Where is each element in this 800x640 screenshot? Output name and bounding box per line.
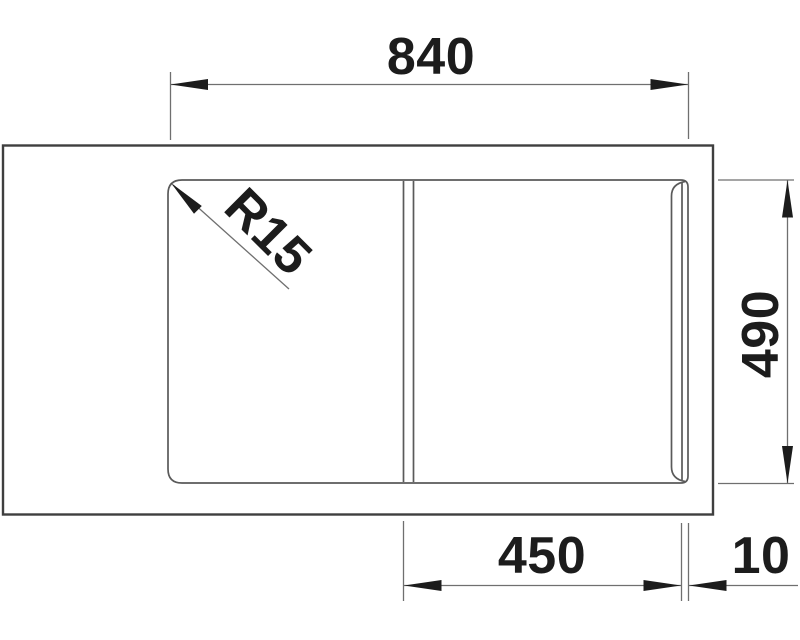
dimension-overall-width: 840 [171, 28, 689, 140]
arrow-right-icon [651, 79, 689, 90]
sink-drawing-svg: 840 490 450 10 [0, 0, 800, 640]
dimension-label-overall-width: 840 [387, 28, 475, 86]
arrow-left-icon [171, 79, 209, 90]
arrow-right-icon [644, 580, 682, 591]
dimension-label-bowl-width: 450 [498, 527, 586, 585]
arrow-diagonal-icon [171, 183, 202, 214]
arrow-up-icon [782, 180, 793, 218]
dimension-label-corner-radius: R15 [213, 177, 323, 287]
technical-drawing-canvas: 840 490 450 10 [0, 0, 800, 640]
dimension-bowl-width: 450 [404, 521, 682, 601]
bowl-inner-wall-line [672, 182, 686, 482]
dimension-label-edge-gap: 10 [732, 527, 791, 585]
arrow-left-icon [689, 580, 727, 591]
sink-outer-edge [3, 146, 713, 515]
dimension-edge-gap: 10 [689, 523, 799, 601]
sink-outline-group [3, 146, 713, 515]
dimension-label-overall-depth: 490 [732, 290, 790, 378]
arrow-down-icon [782, 446, 793, 484]
arrow-left-icon [404, 580, 442, 591]
dimension-overall-depth: 490 [718, 180, 794, 484]
dimension-corner-radius: R15 [171, 177, 323, 289]
